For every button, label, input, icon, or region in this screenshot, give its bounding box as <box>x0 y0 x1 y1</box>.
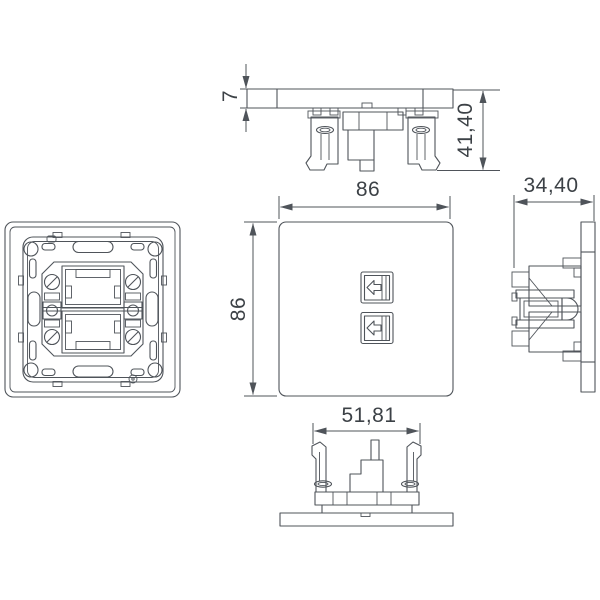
bottom-view <box>280 440 453 526</box>
dim-label-plate-thickness: 7 <box>220 76 242 116</box>
drawing-svg <box>0 0 600 600</box>
mounting-claw-left <box>312 442 332 492</box>
dim-label-plate-height: 86 <box>228 289 250 329</box>
back-view <box>5 222 180 397</box>
claw-clamp-left <box>43 293 61 327</box>
left-arrow-icon <box>367 321 381 335</box>
dim-label-total-depth: 41,40 <box>455 90 477 170</box>
dim-label-plate-width: 86 <box>348 179 388 201</box>
dimension-lines <box>240 64 594 444</box>
dim-label-side-depth: 34,40 <box>511 175 591 197</box>
top-view <box>247 89 453 171</box>
mounting-claw-right <box>408 117 440 170</box>
socket-bottom <box>361 313 393 344</box>
mounting-claw-left <box>306 117 338 170</box>
dim-label-mechanism-width: 51,81 <box>329 405 409 427</box>
mounting-claw-right <box>402 442 422 492</box>
technical-drawing-wall-switch: 7 41,40 86 86 34,40 51,81 <box>0 0 600 600</box>
left-arrow-icon <box>367 281 381 295</box>
front-view <box>279 222 453 396</box>
screw-icon <box>45 275 141 345</box>
socket-top <box>361 272 393 303</box>
side-view <box>512 222 595 392</box>
clamp-screw-side <box>512 290 578 328</box>
dim-side-depth <box>514 195 594 268</box>
claw-clamp-right <box>124 293 142 327</box>
switch-mechanism-back <box>42 262 143 356</box>
